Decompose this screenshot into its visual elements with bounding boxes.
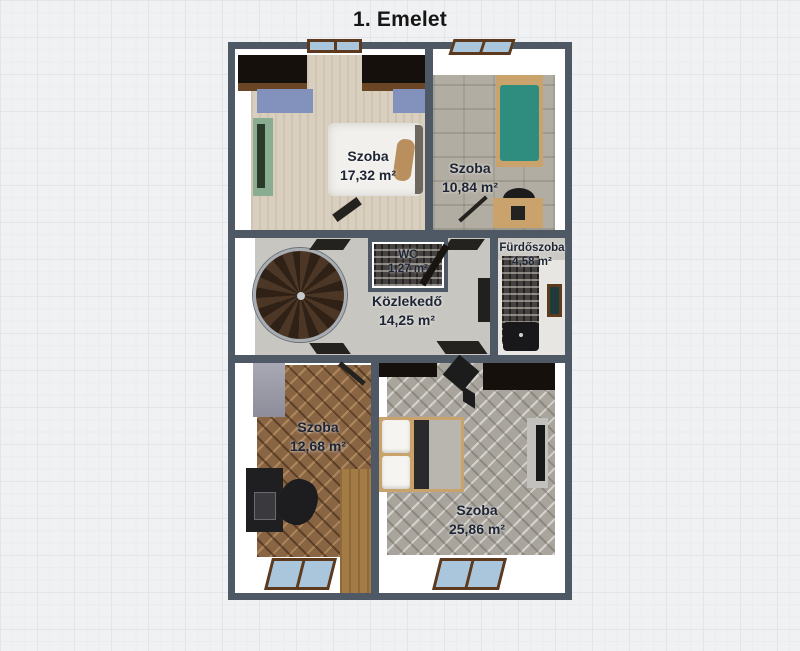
room-label-szoba-3: Szoba 12,68 m² <box>258 418 378 456</box>
room-label-wc: WC 1,27 m² <box>372 248 444 276</box>
bed-blue-icon <box>393 89 425 113</box>
tv-unit-icon <box>527 418 548 488</box>
room-label-szoba-2: Szoba 10,84 m² <box>420 159 520 197</box>
wardrobe-icon <box>379 363 437 377</box>
wardrobe-icon <box>238 55 307 91</box>
room-label-szoba-4: Szoba 25,86 m² <box>417 501 537 539</box>
door-leaf-icon <box>309 343 351 354</box>
wardrobe-gray-icon <box>253 363 285 417</box>
room-name: Fürdőszoba <box>493 241 571 255</box>
wardrobe-icon <box>483 363 555 390</box>
wall-vertical-top <box>425 49 433 238</box>
room-szoba-1: Szoba 17,32 m² <box>235 49 425 230</box>
room-area: 10,84 m² <box>420 178 520 197</box>
room-name: Szoba <box>417 501 537 520</box>
room-label-furdoszoba: Fürdőszoba 4,58 m² <box>493 241 571 269</box>
room-szoba-4: Szoba 25,86 m² <box>379 363 565 593</box>
room-name: Szoba <box>420 159 520 178</box>
window-icon <box>307 39 362 53</box>
room-szoba-2: Szoba 10,84 m² <box>433 49 565 230</box>
single-bed-teal-icon <box>496 75 543 167</box>
room-wc: WC 1,27 m² <box>368 238 448 292</box>
room-name: Szoba <box>258 418 378 437</box>
door-leaf-icon <box>436 341 487 354</box>
room-name: Közlekedő <box>327 292 487 311</box>
wall-horizontal-upper <box>235 230 565 238</box>
room-name: WC <box>372 248 444 262</box>
bed-blue-icon <box>257 89 313 113</box>
green-wardrobe-icon <box>253 118 273 196</box>
room-area: 25,86 m² <box>417 520 537 539</box>
wall-vertical-bottom <box>371 355 379 593</box>
window-icon <box>448 39 515 55</box>
room-area: 12,68 m² <box>258 437 378 456</box>
double-bed-icon <box>379 417 464 492</box>
room-area: 14,25 m² <box>327 311 487 330</box>
window-icon <box>432 558 507 590</box>
room-kozlekedo: Közlekedő 14,25 m² <box>235 238 490 355</box>
room-furdoszoba: Fürdőszoba 4,58 m² <box>498 238 565 355</box>
room-area: 4,58 m² <box>493 255 571 269</box>
wardrobe-icon <box>362 55 425 91</box>
floor-title: 1. Emelet <box>0 8 800 32</box>
desk-icon <box>493 198 543 228</box>
mirror-icon <box>547 284 562 317</box>
room-area: 1,27 m² <box>372 262 444 276</box>
room-label-kozlekedo: Közlekedő 14,25 m² <box>327 292 487 330</box>
wood-floor-strip <box>340 469 371 593</box>
floor-plan: Szoba 17,32 m² Szoba 10,84 m² <box>228 42 572 600</box>
room-szoba-3: Szoba 12,68 m² <box>235 363 371 593</box>
bathtub-icon <box>503 322 539 351</box>
wall-horizontal-lower <box>235 355 565 363</box>
window-icon <box>264 558 337 590</box>
